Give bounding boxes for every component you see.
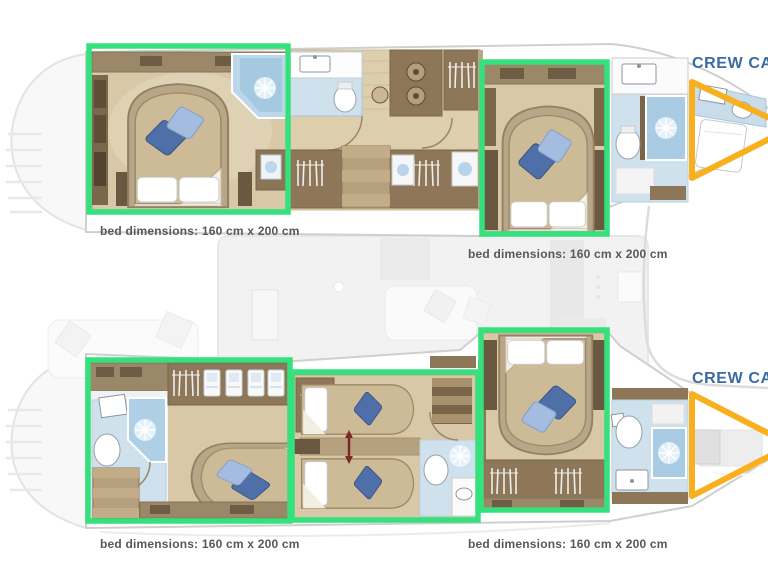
top-hull [86,44,768,236]
galley-counter [390,50,442,116]
cabin-top-right [484,62,606,234]
cabin-bottom-right [478,333,607,510]
bed-dimensions-label-bottom-right: bed dimensions: 160 cm x 200 cm [468,537,668,551]
ensuite-bathroom [420,440,477,516]
double-bed-icon [128,84,228,207]
corridor-cabinets [290,146,480,208]
cabin-steps [432,378,472,424]
wardrobe-towels [168,363,288,405]
vanity-sink-icon [256,150,286,190]
top-hull-corridor [288,50,483,210]
cabin-bottom-middle [293,356,477,519]
yacht-layout-canvas: bed dimensions: 160 cm x 200 cm bed dime… [0,0,768,576]
bed-dimensions-label-top-right: bed dimensions: 160 cm x 200 cm [468,247,668,261]
sink-icon [99,394,128,417]
toilet-icon [616,416,642,448]
vent-icon [372,87,388,103]
hall-bathroom [290,52,362,116]
cabin-top-left [92,52,286,210]
bottom-hull [86,330,768,528]
wardrobe [483,460,607,500]
bed-dimensions-label-top-left: bed dimensions: 160 cm x 200 cm [100,224,300,238]
toilet-icon [424,455,448,485]
cabin-steps [93,468,139,518]
bathroom-top-forward [612,58,688,202]
sink-icon [456,488,472,500]
double-bed-icon [503,106,594,232]
bed-dimensions-label-bottom-left: bed dimensions: 160 cm x 200 cm [100,537,300,551]
single-bed-icon [302,459,414,508]
double-bed-icon [499,335,592,454]
toilet-icon [94,434,120,466]
bathroom-bottom-forward [611,388,688,504]
floor-plan-svg [0,0,768,576]
crew-cabin-label-bottom: CREW CABIN [692,370,768,388]
crew-cabin-label-top: CREW CABIN [692,55,768,73]
single-bed-icon [302,385,414,434]
wardrobe-top [444,50,480,110]
